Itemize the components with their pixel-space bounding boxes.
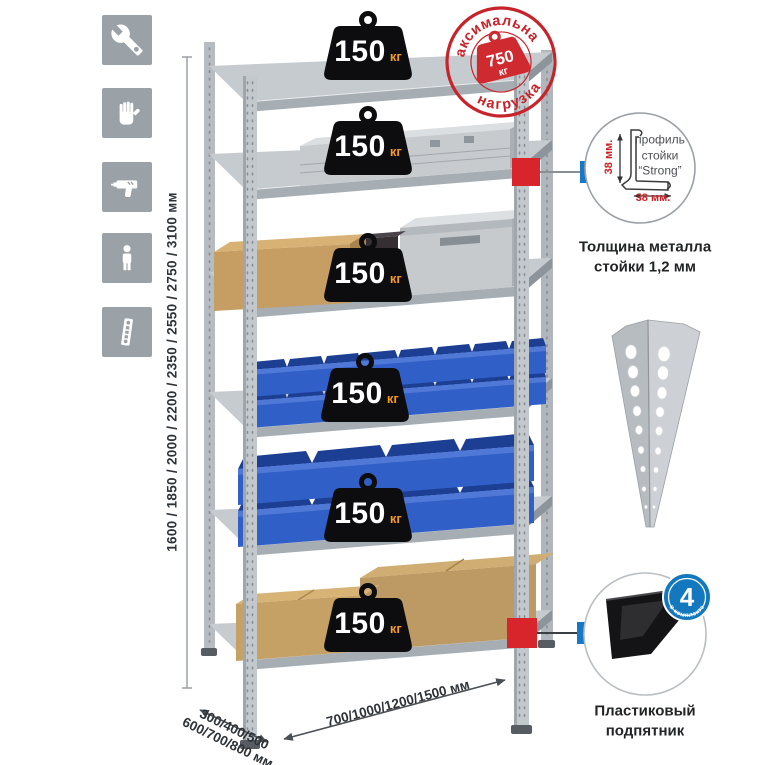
connector-red-square-top bbox=[512, 158, 540, 186]
upright-post-image bbox=[612, 320, 700, 527]
load-value: 150 bbox=[334, 35, 386, 68]
upright-strip-icon bbox=[102, 307, 152, 357]
load-unit: кг bbox=[390, 511, 402, 526]
profile-label: профиль стойки “Strong” bbox=[618, 133, 702, 180]
load-value: 150 bbox=[334, 130, 386, 163]
load-value: 150 bbox=[334, 257, 386, 290]
load-unit: кг bbox=[390, 271, 402, 286]
load-unit: кг bbox=[387, 391, 399, 406]
load-unit: кг bbox=[390, 144, 402, 159]
max-load-stamp: максимальная нагрузка 750 кг bbox=[0, 0, 566, 237]
gloves-icon bbox=[102, 88, 152, 138]
shelf-load-badge-5: 150кг bbox=[320, 473, 416, 545]
connector-red-square-bottom bbox=[507, 618, 537, 648]
badge-number: 4 bbox=[680, 582, 695, 612]
drill-icon bbox=[102, 162, 152, 212]
shelf-load-badge-3: 150кг bbox=[320, 233, 416, 305]
load-unit: кг bbox=[390, 621, 402, 636]
included-count-badge: 4 в комплекте bbox=[663, 573, 711, 621]
product-infographic: максимальная нагрузка 750 кг bbox=[0, 0, 765, 765]
load-unit: кг bbox=[390, 49, 402, 64]
profile-caption: Толщина металла стойки 1,2 мм bbox=[530, 238, 760, 277]
foot-caption: Пластиковый подпятник bbox=[530, 702, 760, 741]
shelf-load-badge-4: 150кг bbox=[317, 353, 413, 425]
person-icon bbox=[102, 233, 152, 283]
shelf-load-badge-1: 150кг bbox=[320, 11, 416, 83]
shelf-load-badge-6: 150кг bbox=[320, 583, 416, 655]
shelf-load-badge-2: 150кг bbox=[320, 106, 416, 178]
profile-dim-vertical: 38 мм. bbox=[603, 140, 615, 175]
load-value: 150 bbox=[331, 377, 383, 410]
load-value: 150 bbox=[334, 607, 386, 640]
plastic-foot-panel: 4 в комплекте bbox=[584, 573, 711, 695]
wrench-icon bbox=[102, 15, 152, 65]
profile-dim-horizontal: 38 мм. bbox=[636, 192, 671, 204]
load-value: 150 bbox=[334, 497, 386, 530]
height-dimension-label: 1600 / 1850 / 2000 / 2200 / 2350 / 2550 … bbox=[165, 192, 180, 552]
